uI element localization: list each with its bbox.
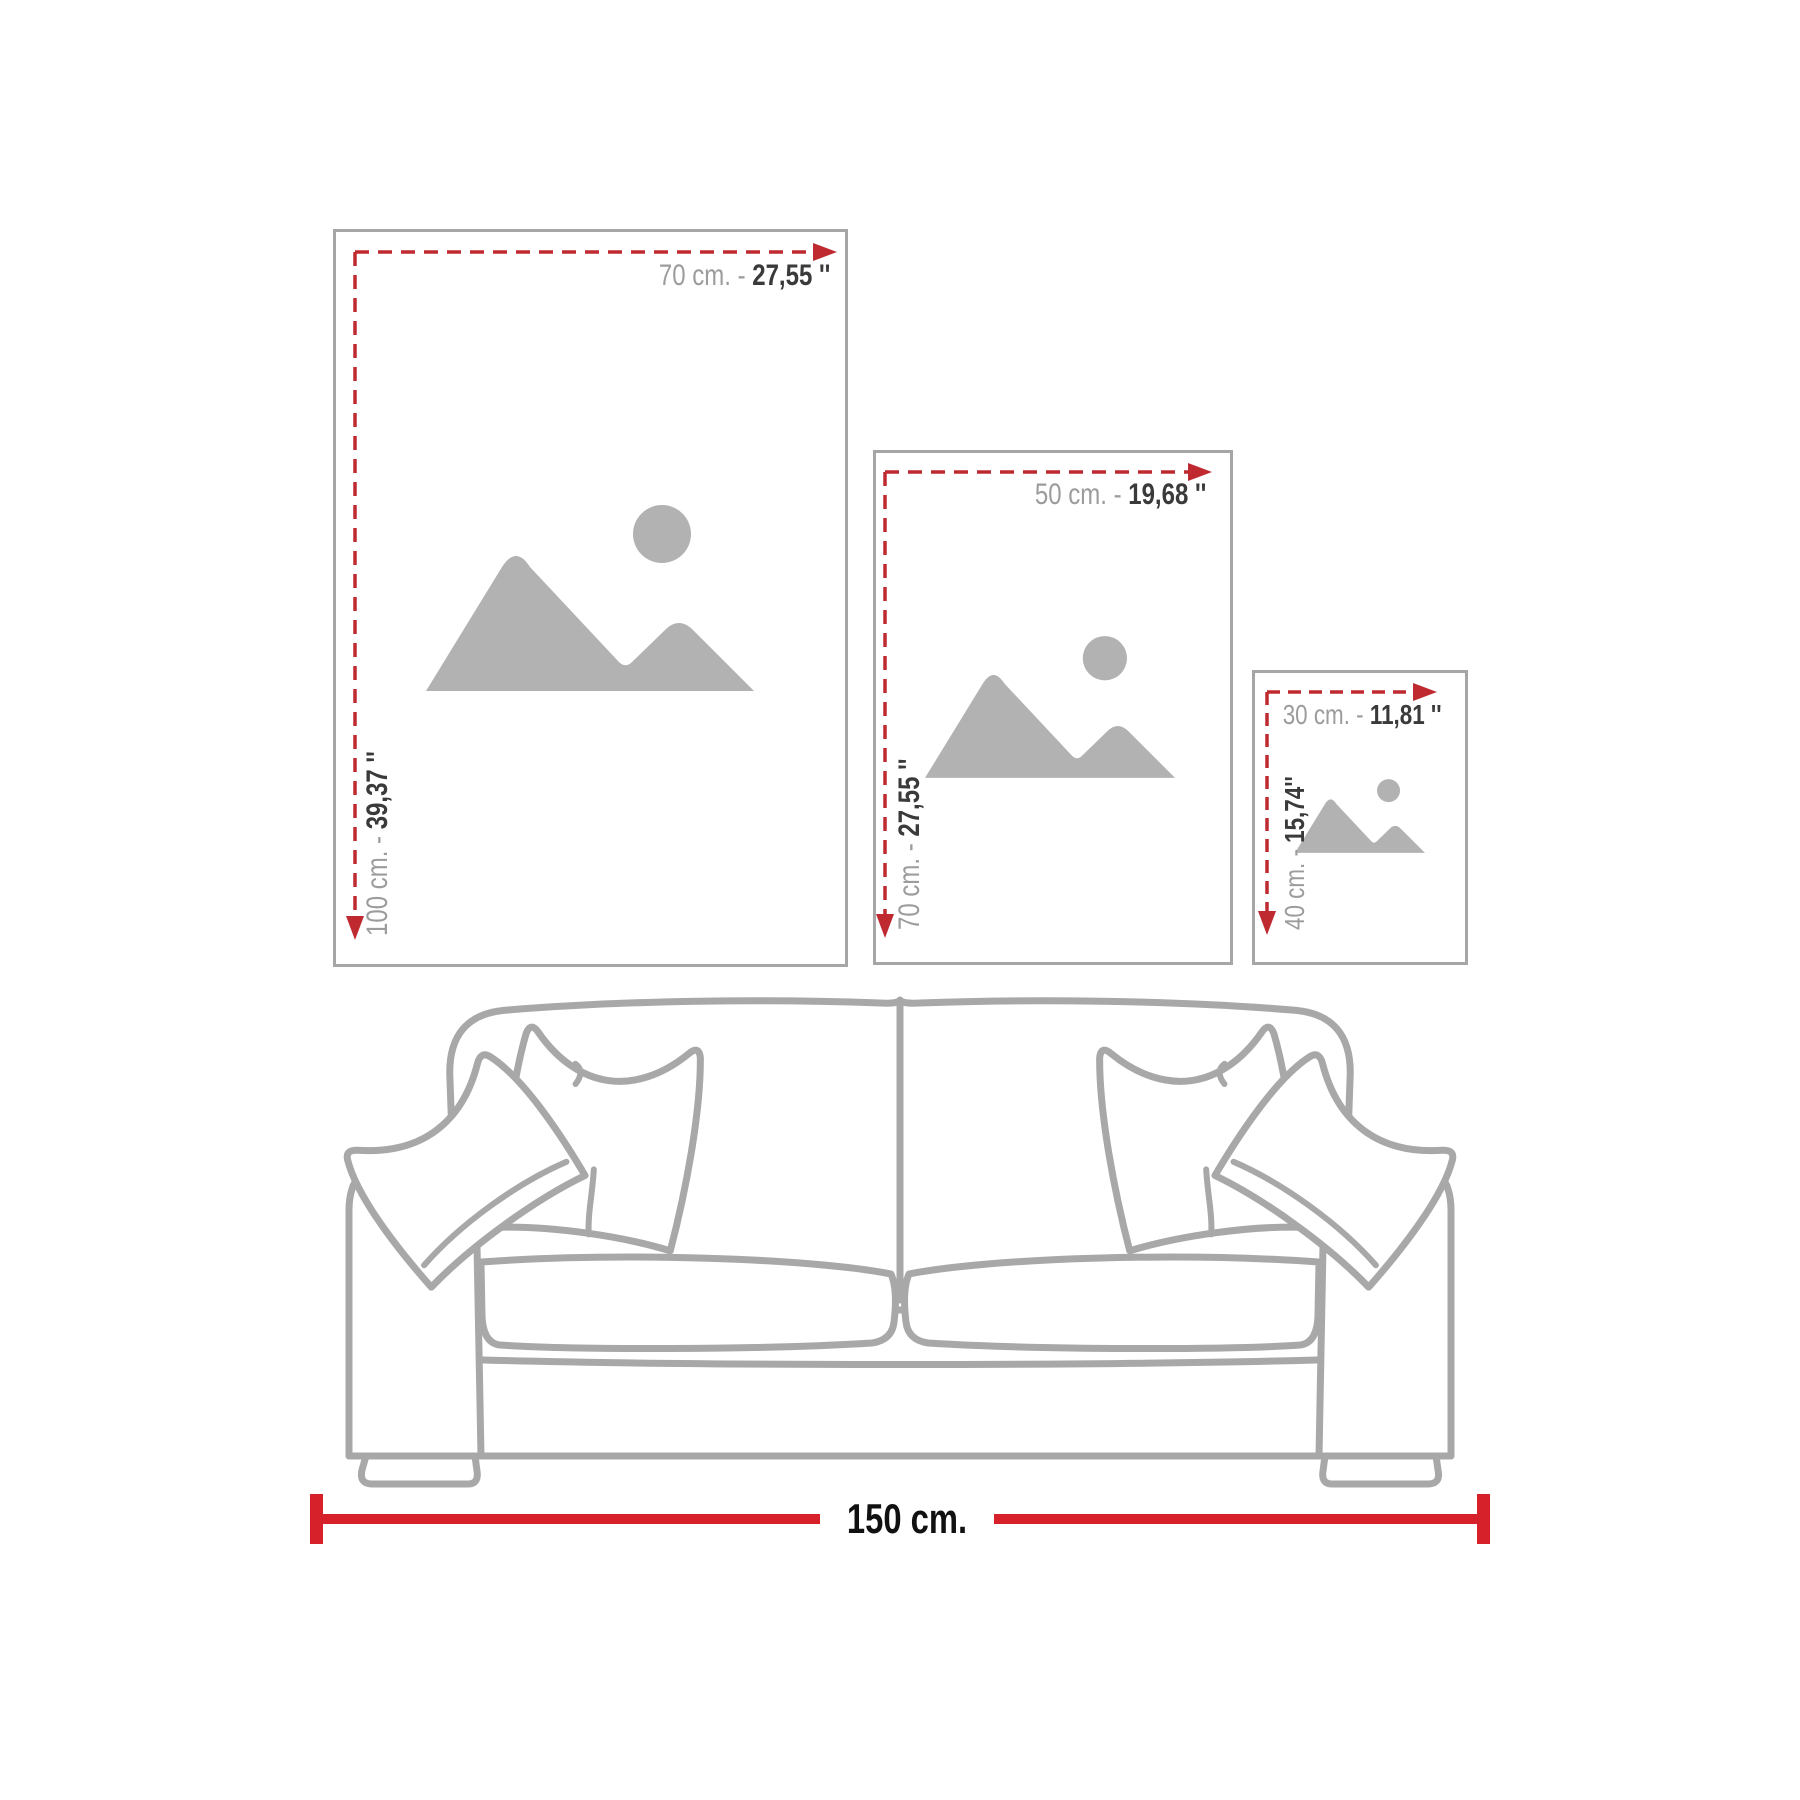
sofa-foot-right	[1323, 1456, 1439, 1484]
height-label-cm: 40 cm. -	[1279, 843, 1310, 930]
dim-arrow-down-medium	[876, 914, 894, 938]
sofa-seat-cushion-right	[905, 1257, 1319, 1348]
width-label-inch: 11,81 ''	[1370, 699, 1442, 730]
dim-arrow-down-small	[1258, 911, 1276, 935]
width-label-inch: 27,55 ''	[752, 259, 830, 292]
width-label-50cm: 50 cm. - 19,68 ''	[1034, 479, 1206, 511]
height-label-inch: 27,55 ''	[893, 758, 926, 836]
width-label-cm: 30 cm. -	[1283, 699, 1370, 730]
sofa-illustration	[336, 1000, 1465, 1484]
width-label-cm: 50 cm. -	[1034, 478, 1127, 511]
sofa-width-value: 150 cm.	[847, 1494, 967, 1544]
width-label-inch: 19,68 ''	[1128, 478, 1206, 511]
dimension-arrows	[346, 243, 1437, 940]
height-label-inch: 15,74''	[1279, 776, 1310, 843]
sofa-foot-left	[361, 1456, 477, 1484]
sofa-base-piping	[483, 1360, 1317, 1365]
height-label-cm: 100 cm. -	[361, 829, 394, 936]
height-label-100cm: 100 cm. - 39,37 ''	[362, 751, 394, 936]
ruler-line-right	[994, 1514, 1482, 1524]
sofa-seat-cushion-left	[481, 1257, 895, 1348]
width-label-70cm: 70 cm. - 27,55 ''	[658, 260, 830, 292]
height-label-inch: 39,37 ''	[361, 751, 394, 829]
width-label-cm: 70 cm. -	[658, 259, 751, 292]
height-label-40cm: 40 cm. - 15,74''	[1279, 776, 1311, 930]
width-label-30cm: 30 cm. - 11,81 ''	[1283, 699, 1442, 731]
size-guide-diagram: 70 cm. - 27,55 '' 100 cm. - 39,37 '' 50 …	[0, 0, 1800, 1800]
height-label-cm: 70 cm. -	[893, 837, 926, 930]
height-label-70cm: 70 cm. - 27,55 ''	[894, 758, 926, 930]
ruler-line-left	[318, 1514, 820, 1524]
